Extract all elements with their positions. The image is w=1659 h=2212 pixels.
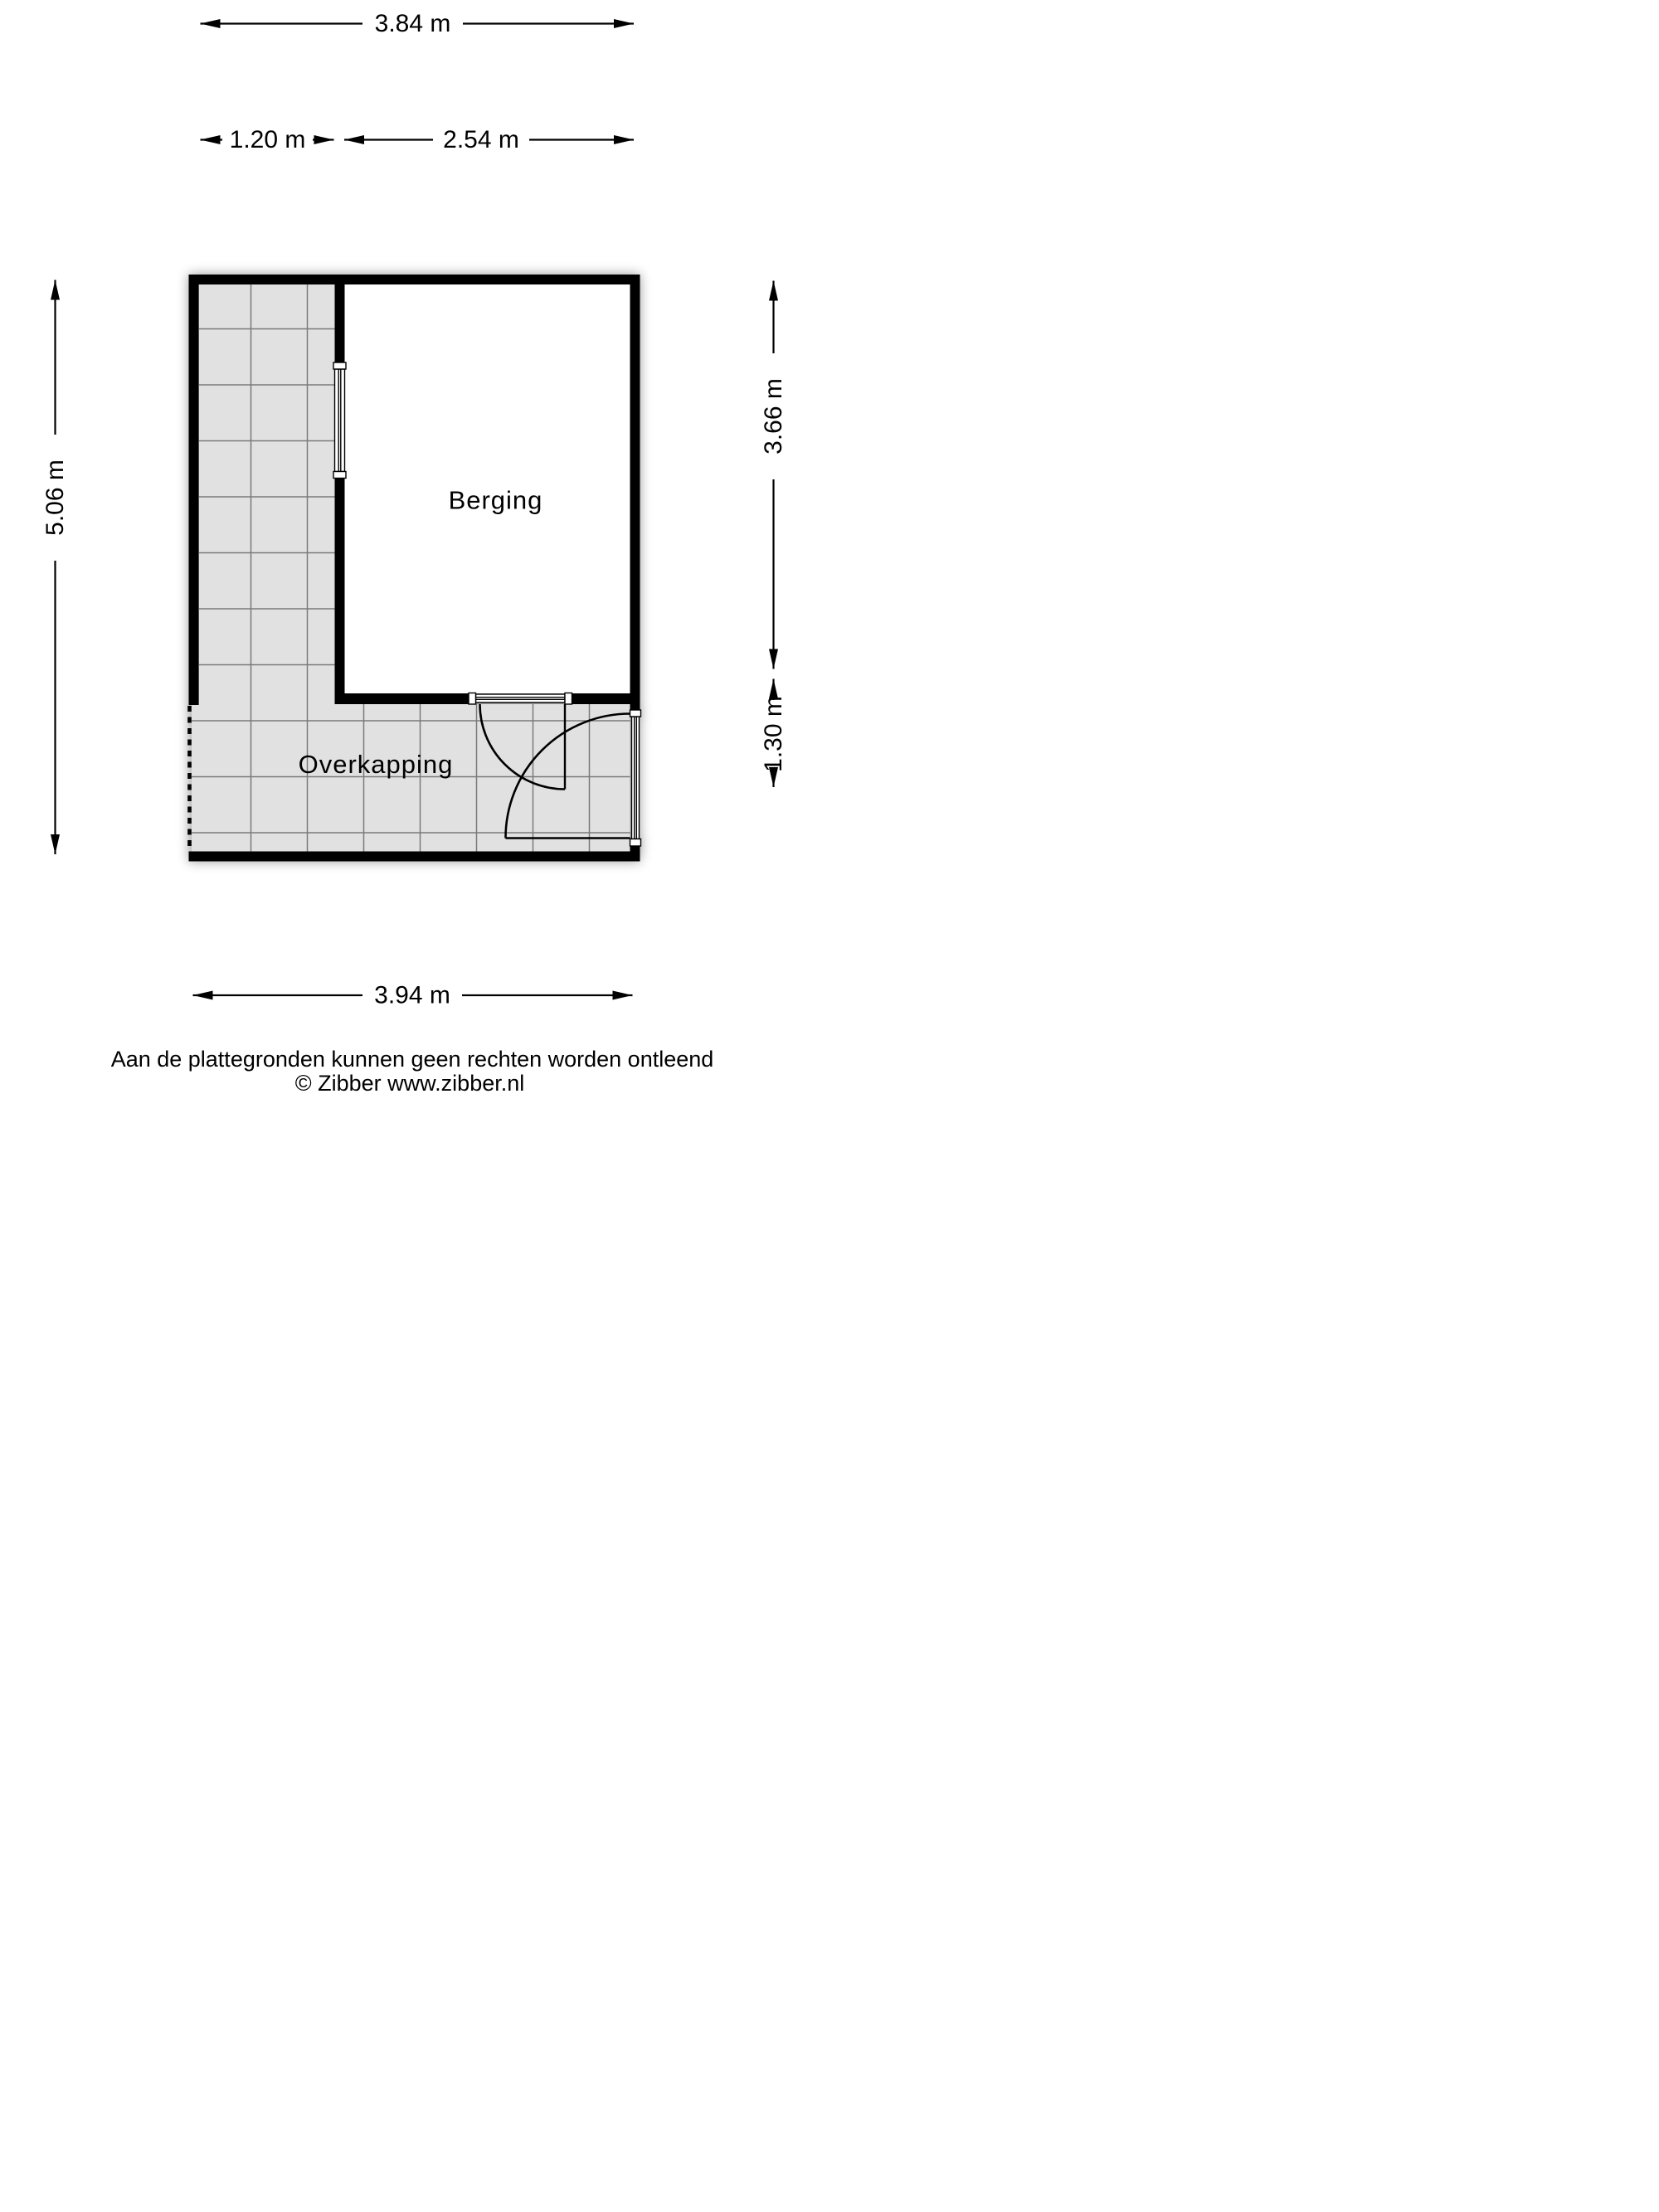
dimension-label-bottom-total: 3.94 m: [374, 982, 450, 1009]
window-left-wall: [333, 362, 346, 479]
room-label-berging: Berging: [449, 486, 543, 515]
dimension-right-upper: 3.66 m: [760, 281, 787, 669]
dimension-label-top-total: 3.84 m: [375, 10, 451, 37]
dimension-top-left: 1.20 m: [201, 126, 334, 153]
room-label-overkapping: Overkapping: [299, 750, 454, 779]
dimension-label-top-right: 2.54 m: [443, 126, 519, 153]
dimension-top-right: 2.54 m: [344, 126, 634, 153]
dimension-top-total: 3.84 m: [201, 10, 635, 37]
dimension-left-total: 5.06 m: [41, 280, 69, 855]
dimension-right-lower: 1.30 m: [760, 679, 787, 788]
floorplan-canvas: Berging Overkapping 3.84 m 1.20 m 2.54 m…: [0, 0, 829, 1106]
dimension-bottom-total: 3.94 m: [193, 982, 633, 1009]
dimension-label-left-total: 5.06 m: [41, 459, 69, 536]
floorplan-page: Berging Overkapping 3.84 m 1.20 m 2.54 m…: [0, 0, 829, 1106]
dimension-label-right-upper: 3.66 m: [760, 378, 787, 455]
dimension-label-right-lower: 1.30 m: [760, 696, 787, 772]
footer-disclaimer: Aan de plattegronden kunnen geen rechten…: [111, 1047, 714, 1072]
dimension-label-top-left: 1.20 m: [230, 126, 306, 153]
footer-copyright: © Zibber www.zibber.nl: [295, 1071, 525, 1096]
